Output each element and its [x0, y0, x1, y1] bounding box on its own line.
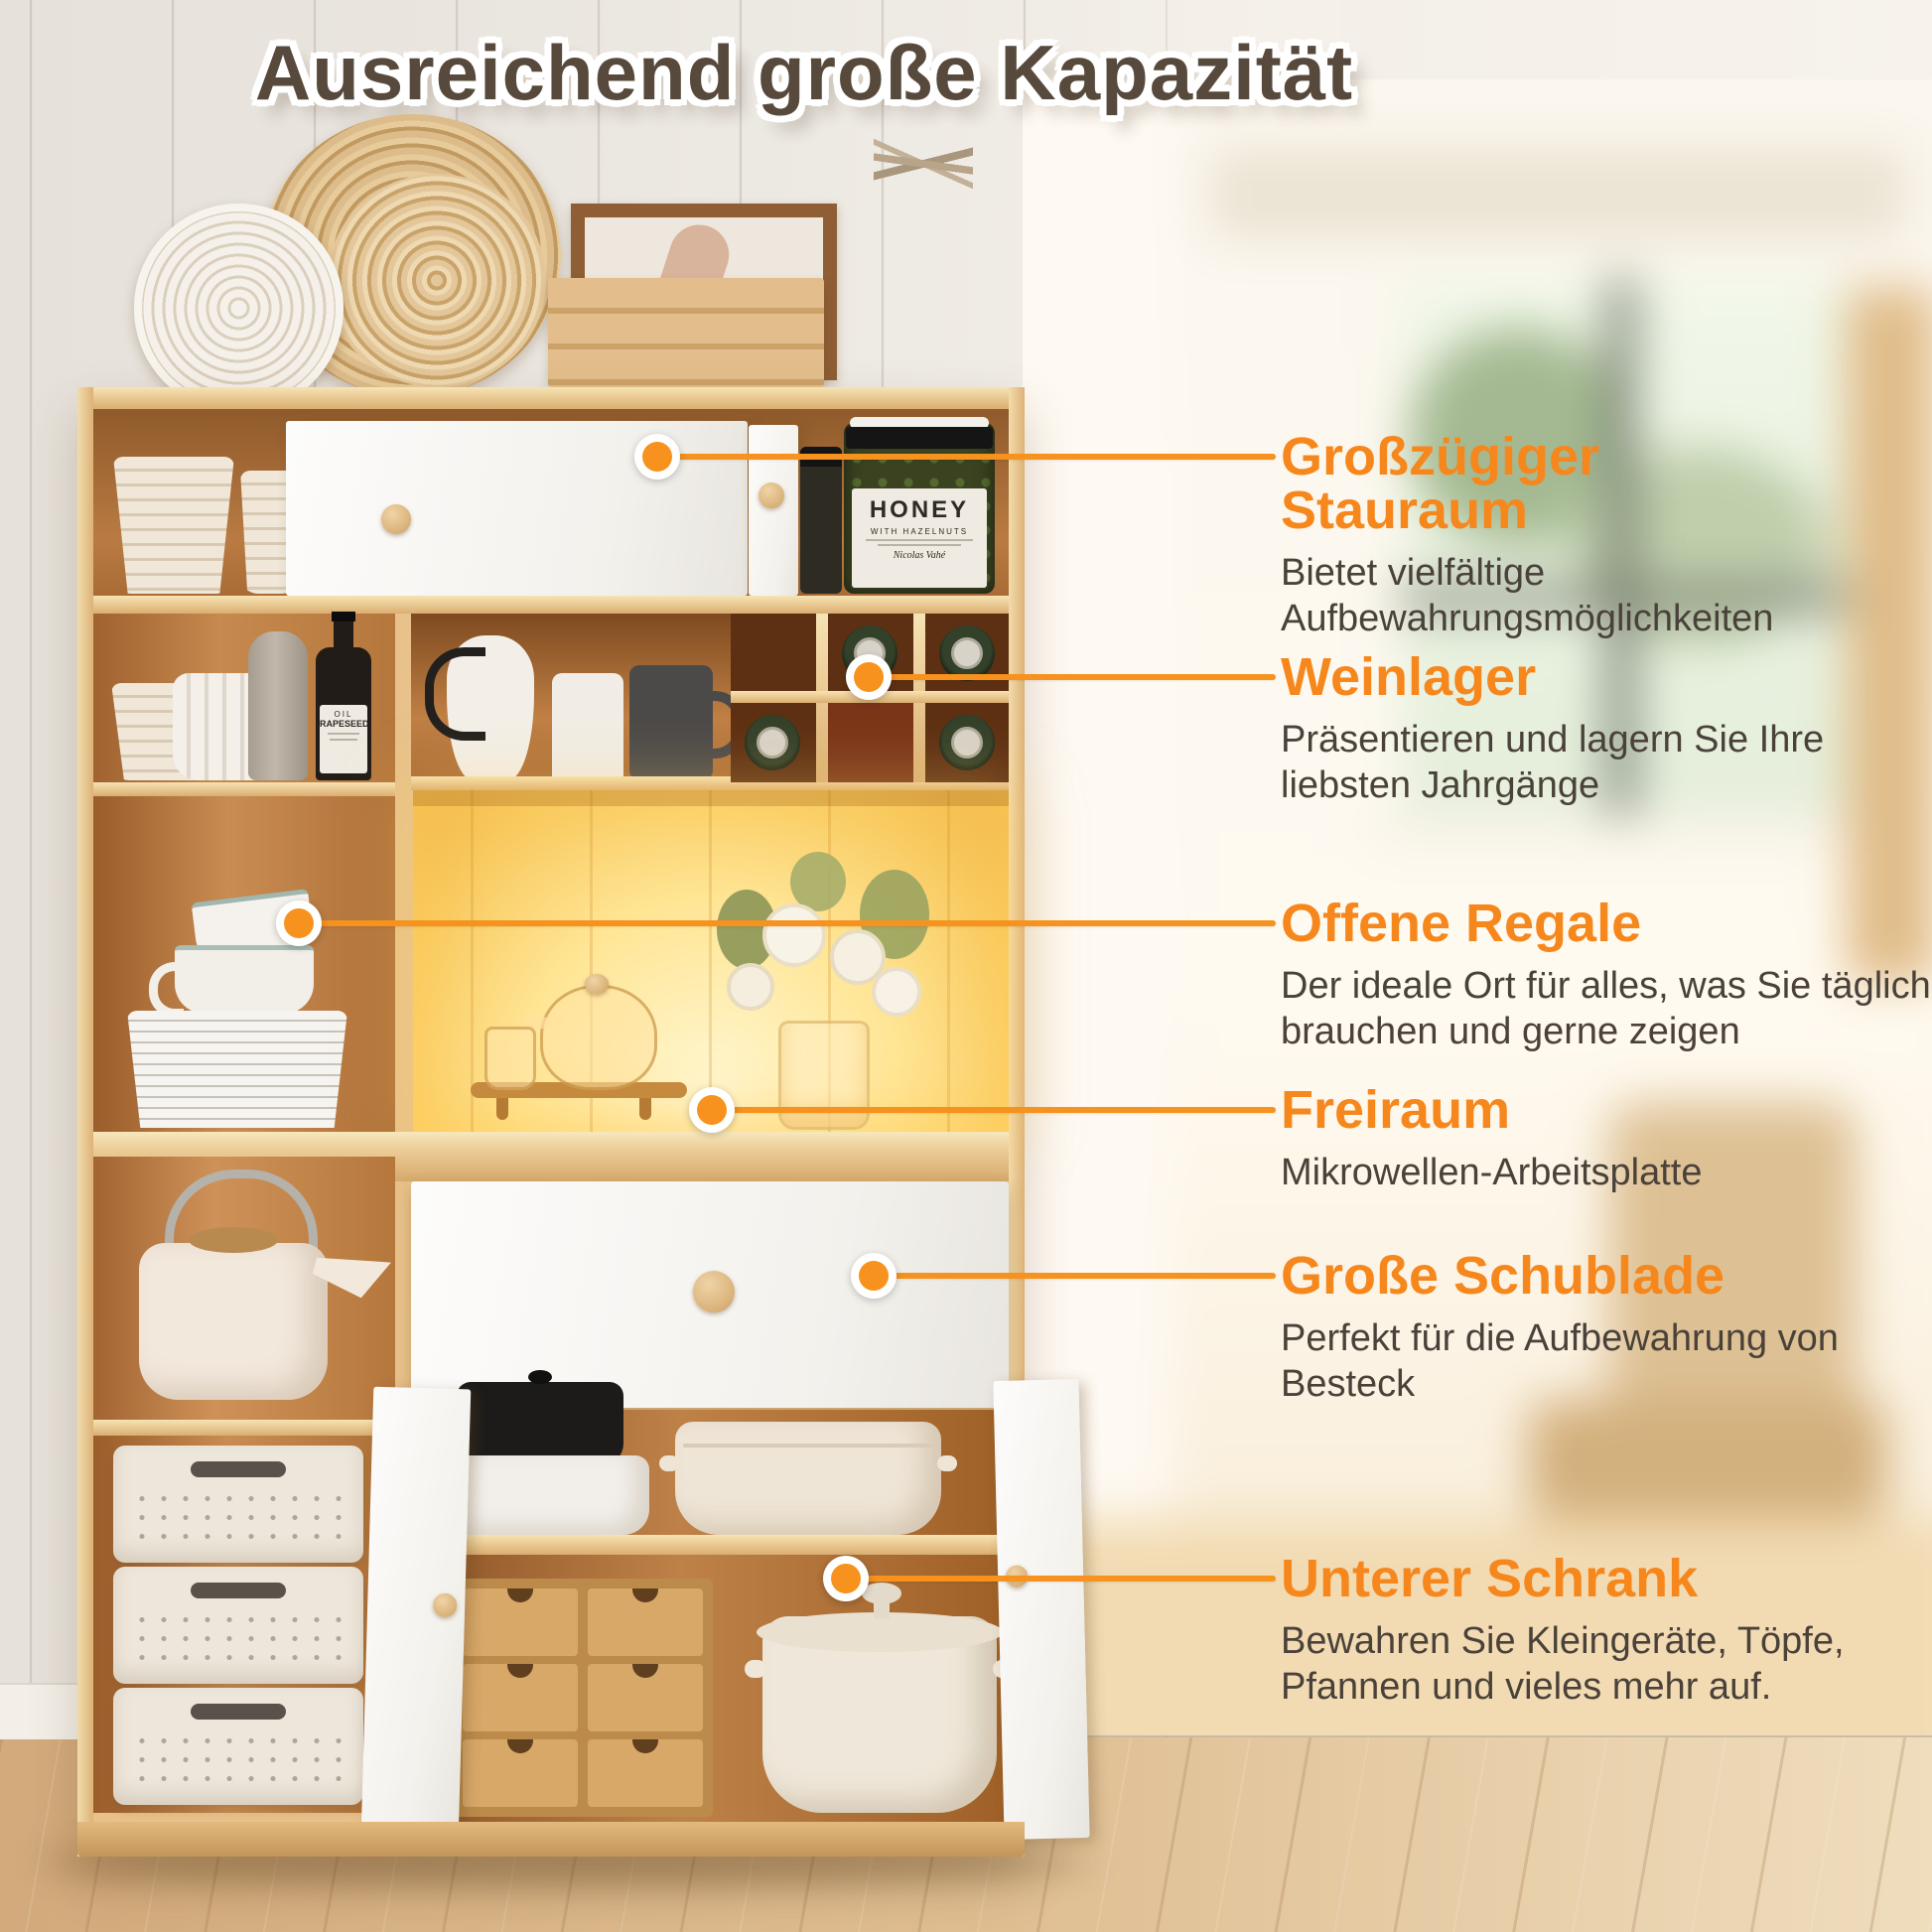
flower-3: [872, 967, 921, 1017]
flower-1: [762, 903, 826, 967]
oil-bottle-label: OIL RAPESEED: [320, 705, 367, 773]
callout-dot-stauraum: [634, 434, 680, 480]
callout-schublade: Große Schublade Perfekt für die Aufbewah…: [1281, 1249, 1896, 1407]
callout-freiraum-title: Freiraum: [1281, 1083, 1932, 1137]
kettle-body: [139, 1243, 328, 1400]
oil-bottle: OIL RAPESEED: [316, 647, 371, 780]
honey-label-rule-2: [878, 544, 961, 546]
honey-jar-lid: [846, 427, 993, 449]
shelf-1: [93, 596, 1009, 614]
plate-stack: [127, 1011, 347, 1128]
chest-drawer-2: [588, 1588, 703, 1656]
left-door-knob[interactable]: [433, 1592, 458, 1617]
bg-ceiling-beam: [1211, 149, 1906, 238]
callout-stauraum-title: Großzügiger Stauraum: [1281, 430, 1837, 537]
honey-label-line2: WITH HAZELNUTS: [852, 527, 987, 536]
cabinet: HONEY WITH HAZELNUTS Nicolas Vahé OIL RA…: [77, 387, 1025, 1857]
bottom-shelf: [423, 1535, 999, 1555]
wine-rack-back-accent: [826, 703, 913, 782]
cabinet-left-side: [77, 387, 93, 1857]
wine-bottle-4: [939, 715, 995, 770]
leader-line-1: [657, 454, 1276, 460]
storage-basket-3: [113, 1688, 363, 1805]
led-niche: [413, 790, 1009, 1132]
sliding-door-knob-left[interactable]: [381, 504, 411, 534]
woven-tray-small: [328, 174, 546, 387]
flower-4: [727, 963, 774, 1011]
teapot-lid-knob: [585, 974, 609, 994]
stacked-cup-bottom: [175, 945, 314, 1014]
chest-drawer-6: [588, 1739, 703, 1807]
wooden-crate: [548, 278, 824, 387]
chest-drawer-3: [463, 1664, 578, 1731]
oil-label-rule-1: [328, 733, 359, 735]
leader-line-5: [874, 1273, 1276, 1279]
dark-mug: [629, 665, 713, 780]
chest-drawer-4: [588, 1664, 703, 1731]
callout-stauraum-body: Bietet vielfältige Aufbewahrungsmöglichk…: [1281, 551, 1837, 641]
beige-pot-handle-right: [937, 1455, 957, 1471]
cylinder-vase: [552, 673, 623, 780]
beige-pot: [675, 1422, 941, 1535]
dutch-oven-knob-stem: [874, 1600, 890, 1618]
callout-dot-schublade: [851, 1253, 897, 1299]
callout-schrank-title: Unterer Schrank: [1281, 1552, 1916, 1605]
black-pot: [457, 1382, 623, 1465]
honey-label-line1: HONEY: [852, 496, 987, 524]
honey-jar: HONEY WITH HAZELNUTS Nicolas Vahé: [844, 423, 995, 594]
mini-drawer-chest: [453, 1579, 713, 1817]
leader-line-2: [869, 674, 1276, 680]
glass-cup: [484, 1027, 536, 1090]
tray-leg-left: [496, 1098, 508, 1120]
leader-line-6: [846, 1576, 1276, 1582]
oil-label-rule-2: [330, 739, 357, 741]
callout-regale-title: Offene Regale: [1281, 897, 1932, 950]
product-infographic: Ausreichend große Kapazität HONEY WIT: [0, 0, 1932, 1932]
wine-bottle-2: [939, 625, 995, 681]
oil-label-line2: RAPESEED: [320, 719, 367, 729]
sliding-door-panel-right[interactable]: [749, 425, 798, 596]
kettle-lid: [189, 1227, 278, 1253]
callout-schrank-body: Bewahren Sie Kleingeräte, Töpfe, Pfannen…: [1281, 1619, 1916, 1710]
bg-wood-column: [1847, 288, 1932, 983]
honey-jar-small: [800, 447, 842, 594]
callout-freiraum-body: Mikrowellen-Arbeitsplatte: [1281, 1151, 1932, 1196]
callout-schublade-body: Perfekt für die Aufbewahrung von Besteck: [1281, 1316, 1896, 1407]
dutch-oven-handle-left: [745, 1660, 766, 1678]
tray-leg-right: [639, 1098, 651, 1120]
niche-top-shade: [413, 790, 1009, 806]
page-title: Ausreichend große Kapazität: [0, 28, 1608, 118]
gray-bottle-vase: [248, 631, 308, 780]
leader-line-4: [712, 1107, 1276, 1113]
cabinet-plinth: [77, 1822, 1025, 1857]
callout-weinlager: Weinlager Präsentieren und lagern Sie Ih…: [1281, 650, 1876, 808]
oil-bottle-neck: [334, 620, 353, 649]
flower-bouquet: [711, 860, 939, 1038]
callout-dot-regale: [276, 900, 322, 946]
callout-freiraum: Freiraum Mikrowellen-Arbeitsplatte: [1281, 1083, 1932, 1196]
oil-bottle-cap: [332, 612, 355, 621]
honey-label-rule-1: [866, 539, 973, 541]
cabinet-top-board: [77, 387, 1025, 409]
storage-basket-1: [113, 1446, 363, 1563]
bg-chair-seat: [1529, 1400, 1886, 1519]
cabinet-door-left-open[interactable]: [361, 1387, 472, 1839]
callout-schublade-title: Große Schublade: [1281, 1249, 1896, 1303]
callout-regale: Offene Regale Der ideale Ort für alles, …: [1281, 897, 1932, 1054]
left-shelf-2: [93, 782, 395, 796]
callout-stauraum: Großzügiger Stauraum Bietet vielfältige …: [1281, 430, 1837, 641]
chest-drawer-1: [463, 1588, 578, 1656]
chest-drawer-5: [463, 1739, 578, 1807]
callout-dot-schrank: [823, 1556, 869, 1601]
leader-line-3: [299, 920, 1276, 926]
callout-schrank: Unterer Schrank Bewahren Sie Kleingeräte…: [1281, 1552, 1916, 1710]
storage-basket-2: [113, 1567, 363, 1684]
woven-plate: [134, 204, 344, 413]
drawer-knob[interactable]: [693, 1271, 735, 1312]
beige-pot-lid-line: [683, 1444, 933, 1448]
honey-jar-label: HONEY WITH HAZELNUTS Nicolas Vahé: [852, 488, 987, 588]
pitcher-handle: [425, 647, 485, 741]
left-shelf-3: [93, 1420, 395, 1436]
callout-dot-freiraum: [689, 1087, 735, 1133]
wine-bottle-3: [745, 715, 800, 770]
glass-teapot: [540, 985, 657, 1090]
honey-label-brand: Nicolas Vahé: [852, 550, 987, 561]
baseboard: [0, 1683, 77, 1739]
bg-window-sill: [1370, 814, 1886, 850]
dutch-oven: [762, 1616, 997, 1813]
callout-weinlager-title: Weinlager: [1281, 650, 1876, 704]
bowl-stack-1: [113, 457, 234, 594]
callout-weinlager-body: Präsentieren und lagern Sie Ihre liebste…: [1281, 718, 1876, 808]
dutch-oven-lid: [757, 1612, 1003, 1652]
callout-dot-weinlager: [846, 654, 892, 700]
black-pot-knob: [528, 1370, 552, 1384]
cabinet-door-right-open[interactable]: [993, 1379, 1089, 1840]
sliding-door-knob-right[interactable]: [759, 483, 784, 508]
callout-regale-body: Der ideale Ort für alles, was Sie täglic…: [1281, 964, 1932, 1054]
beige-pot-handle-left: [659, 1455, 679, 1471]
greenery-3: [790, 852, 846, 911]
oil-label-line1: OIL: [320, 710, 367, 719]
